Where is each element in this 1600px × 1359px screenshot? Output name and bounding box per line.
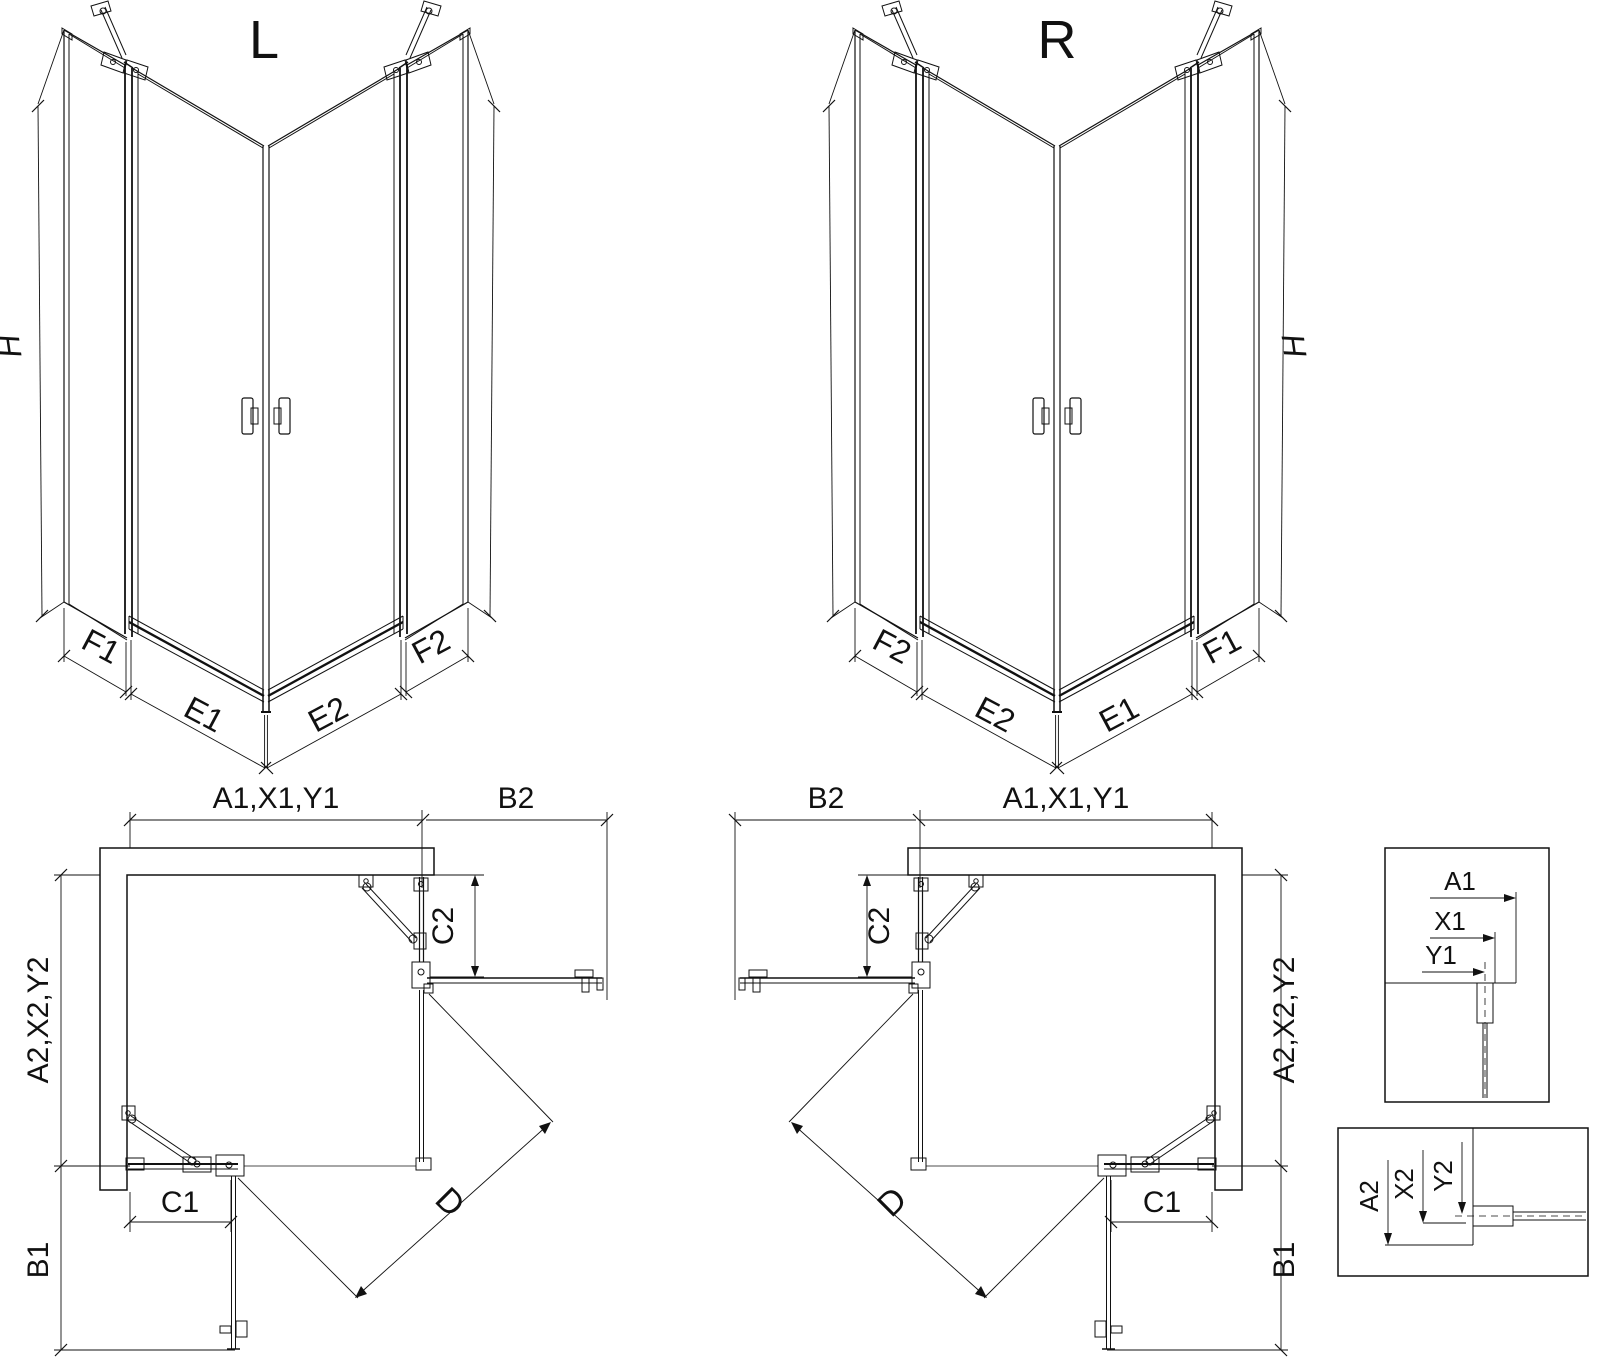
plan-geometry-left xyxy=(54,810,613,1356)
dim-label-d-plan-right: D xyxy=(870,1180,914,1224)
dim-label-b2-plan-right: B2 xyxy=(808,782,845,815)
dim-label-h-left: H xyxy=(0,332,29,361)
detail-dim-a2: A2 xyxy=(1354,1180,1384,1212)
dim-label-b1-plan-left: B1 xyxy=(22,1242,55,1279)
detail-dim-a1: A1 xyxy=(1444,866,1476,896)
dim-label-c2-plan-right: C2 xyxy=(863,907,896,945)
detail-dim-y1: Y1 xyxy=(1425,940,1457,970)
detail-view-depth: A2 X2 Y2 xyxy=(1338,1128,1588,1276)
dim-label-c2-plan-left: C2 xyxy=(427,907,460,945)
dim-label-a1x1y1-plan-left: A1,X1,Y1 xyxy=(213,782,340,815)
wall-section-right-plan xyxy=(908,848,1242,1190)
plan-view-right: A1,X1,Y1 B2 C2 A2,X2,Y2 B1 C1 D xyxy=(729,782,1301,1356)
dim-label-a2x2y2-plan-left: A2,X2,Y2 xyxy=(22,957,55,1084)
dim-label-f2-left-view: F2 xyxy=(406,622,456,671)
detail-dim-x2: X2 xyxy=(1389,1168,1419,1200)
detail-dim-x1: X1 xyxy=(1434,906,1466,936)
view-label-l: L xyxy=(249,10,279,70)
shower-enclosure-technical-drawing: L H F1 E1 E2 F2 R H F2 E2 E1 F1 A1,X1,Y1… xyxy=(0,0,1600,1359)
dim-label-a2x2y2-plan-right: A2,X2,Y2 xyxy=(1268,957,1301,1084)
perspective-view-left: L H F1 E1 E2 F2 xyxy=(0,1,500,774)
dim-label-c1-plan-left: C1 xyxy=(161,1186,199,1219)
dim-label-e1-right-view: E1 xyxy=(1093,689,1144,739)
plan-geometry-right xyxy=(729,810,1288,1356)
drawing-page: L H F1 E1 E2 F2 R H F2 E2 E1 F1 A1,X1,Y1… xyxy=(0,0,1600,1359)
view-label-r: R xyxy=(1038,10,1077,70)
detail-dim-y2: Y2 xyxy=(1428,1160,1458,1192)
dim-label-f1-left-view: F1 xyxy=(76,622,126,671)
dim-label-e2-right-view: E2 xyxy=(969,689,1020,739)
dim-label-c1-plan-right: C1 xyxy=(1143,1186,1181,1219)
dim-label-e2-left-view: E2 xyxy=(302,689,353,739)
plan-view-left: A1,X1,Y1 B2 C2 A2,X2,Y2 B1 C1 D xyxy=(22,782,613,1356)
dim-label-f1-right-view: F1 xyxy=(1197,622,1247,671)
dim-label-h-right: H xyxy=(1275,332,1314,361)
dim-label-a1x1y1-plan-right: A1,X1,Y1 xyxy=(1003,782,1130,815)
dim-label-b2-plan-left: B2 xyxy=(498,782,535,815)
dim-label-f2-right-view: F2 xyxy=(867,622,917,671)
detail-view-width: A1 X1 Y1 xyxy=(1385,848,1549,1102)
dim-label-d-plan-left: D xyxy=(428,1180,472,1224)
dim-label-e1-left-view: E1 xyxy=(178,689,229,739)
dim-label-b1-plan-right: B1 xyxy=(1268,1242,1301,1279)
perspective-view-right: R H F2 E2 E1 F1 xyxy=(823,1,1314,774)
wall-section-left-plan xyxy=(100,848,434,1190)
